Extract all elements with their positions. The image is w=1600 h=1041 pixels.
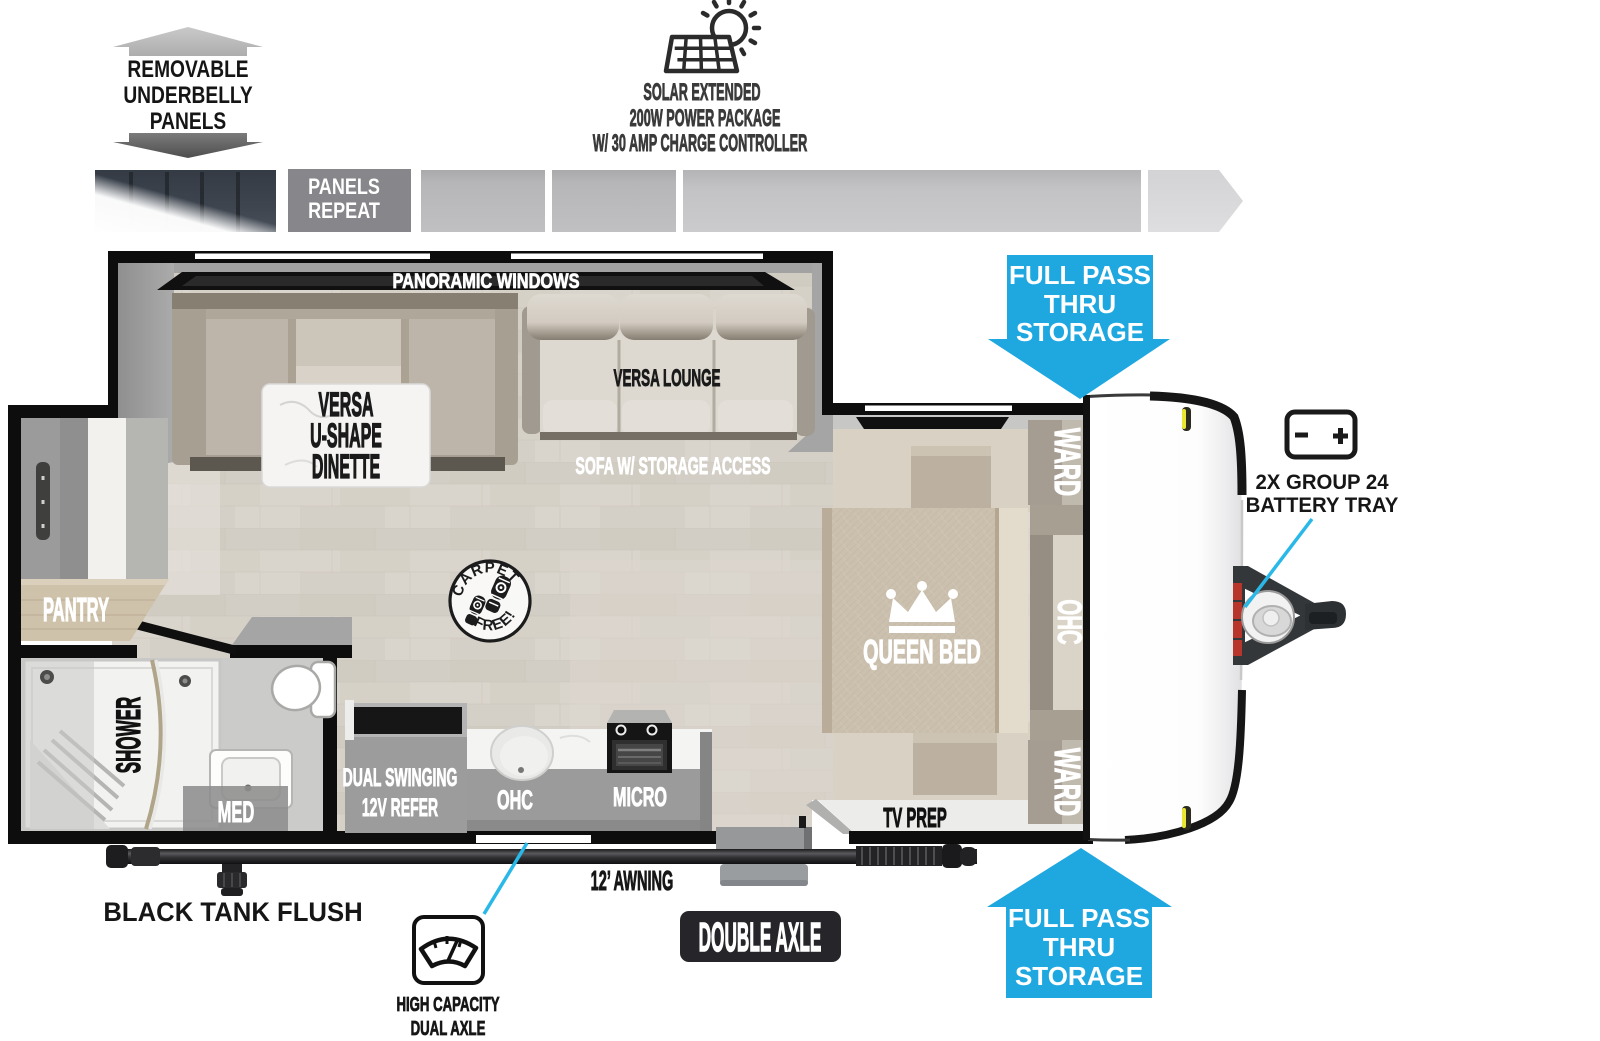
svg-text:W/ 30 AMP CHARGE CONTROLLER: W/ 30 AMP CHARGE CONTROLLER	[593, 131, 808, 157]
svg-text:BLACK TANK FLUSH: BLACK TANK FLUSH	[103, 897, 362, 927]
svg-text:SOLAR EXTENDED: SOLAR EXTENDED	[643, 80, 760, 106]
svg-text:HIGH CAPACITY: HIGH CAPACITY	[396, 993, 500, 1015]
svg-text:UNDERBELLY: UNDERBELLY	[123, 81, 253, 109]
svg-text:DUAL SWINGING: DUAL SWINGING	[343, 765, 458, 792]
svg-text:DINETTE: DINETTE	[312, 447, 380, 485]
svg-text:DOUBLE AXLE: DOUBLE AXLE	[699, 914, 822, 960]
svg-text:WARD: WARD	[1047, 748, 1087, 816]
svg-text:STORAGE: STORAGE	[1015, 961, 1143, 991]
svg-text:PANORAMIC WINDOWS: PANORAMIC WINDOWS	[392, 269, 579, 292]
svg-text:PANELS: PANELS	[150, 107, 226, 135]
svg-text:200W POWER PACKAGE: 200W POWER PACKAGE	[630, 106, 781, 132]
svg-text:OHC: OHC	[1051, 599, 1089, 644]
svg-text:REPEAT: REPEAT	[308, 199, 380, 223]
svg-text:WARD: WARD	[1047, 428, 1087, 496]
svg-text:SHOWER: SHOWER	[110, 697, 148, 773]
svg-text:FULL PASS: FULL PASS	[1009, 260, 1151, 290]
svg-text:TV PREP: TV PREP	[883, 802, 946, 833]
svg-text:BATTERY TRAY: BATTERY TRAY	[1246, 494, 1399, 517]
svg-text:2X GROUP 24: 2X GROUP 24	[1255, 471, 1389, 494]
svg-text:THRU: THRU	[1044, 289, 1116, 319]
svg-text:STORAGE: STORAGE	[1016, 317, 1144, 347]
svg-text:DUAL AXLE: DUAL AXLE	[411, 1017, 486, 1039]
svg-text:12’ AWNING: 12’ AWNING	[591, 865, 674, 896]
svg-text:PANELS: PANELS	[308, 175, 380, 199]
svg-text:VERSA LOUNGE: VERSA LOUNGE	[614, 365, 721, 392]
svg-text:SOFA W/ STORAGE ACCESS: SOFA W/ STORAGE ACCESS	[575, 453, 770, 480]
svg-text:OHC: OHC	[497, 785, 533, 815]
svg-text:MICRO: MICRO	[613, 782, 667, 812]
svg-text:FULL PASS: FULL PASS	[1008, 903, 1150, 933]
svg-text:12V REFER: 12V REFER	[362, 795, 438, 822]
svg-text:MED: MED	[218, 796, 255, 829]
svg-text:THRU: THRU	[1043, 932, 1115, 962]
svg-text:QUEEN BED: QUEEN BED	[863, 633, 981, 671]
svg-text:REMOVABLE: REMOVABLE	[127, 55, 248, 83]
svg-text:PANTRY: PANTRY	[43, 591, 109, 629]
